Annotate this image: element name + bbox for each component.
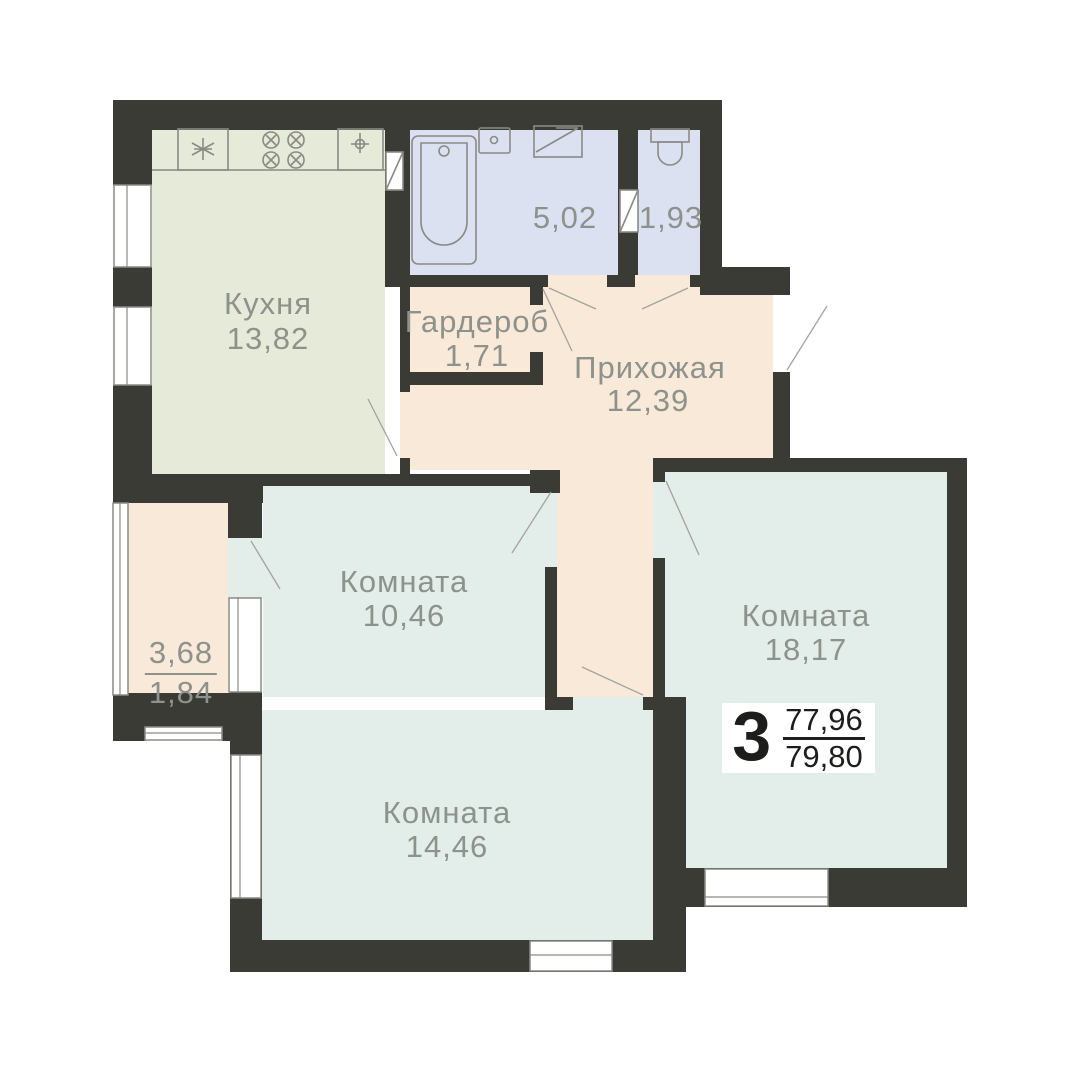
label-kitchen-area: 13,82 bbox=[227, 321, 310, 357]
wall bbox=[545, 567, 557, 697]
area-fraction: 77,96 79,80 bbox=[783, 703, 865, 774]
room-hallway-left bbox=[410, 385, 543, 470]
door-opening bbox=[548, 275, 607, 287]
wall bbox=[607, 275, 635, 287]
room-bedroom-large bbox=[665, 472, 947, 868]
wall bbox=[643, 697, 686, 710]
label-bedroom-mid-name: Комната bbox=[383, 795, 511, 831]
label-bedroom-large-area: 18,17 bbox=[765, 632, 848, 668]
rooms-count: 3 bbox=[732, 701, 771, 771]
wall bbox=[773, 372, 790, 470]
wall bbox=[228, 490, 262, 538]
wall bbox=[653, 697, 686, 972]
wall bbox=[690, 275, 710, 287]
label-balcony-area-total: 3,68 bbox=[145, 635, 217, 675]
label-bathroom-area: 5,02 bbox=[533, 200, 597, 236]
door-opening bbox=[545, 493, 557, 567]
door-opening bbox=[653, 482, 665, 558]
wall bbox=[947, 458, 967, 907]
living-area: 77,96 bbox=[783, 703, 865, 740]
wall bbox=[230, 692, 262, 972]
label-wardrobe-name: Гардероб bbox=[405, 304, 549, 340]
apartment-info-badge: 3 77,96 79,80 bbox=[722, 703, 875, 773]
label-wardrobe-area: 1,71 bbox=[445, 338, 509, 374]
wall bbox=[653, 470, 665, 482]
wall bbox=[545, 697, 573, 710]
wall bbox=[686, 868, 967, 907]
wall bbox=[700, 100, 722, 280]
wall bbox=[618, 130, 638, 275]
door-opening bbox=[400, 392, 410, 458]
wall bbox=[113, 727, 145, 741]
wall bbox=[385, 130, 410, 287]
door-opening bbox=[573, 697, 643, 710]
wall bbox=[530, 352, 543, 372]
wall bbox=[263, 474, 557, 486]
label-bedroom-small-area: 10,46 bbox=[363, 598, 446, 634]
label-hallway-area: 12,39 bbox=[607, 383, 690, 419]
label-toilet-area: 1,93 bbox=[639, 200, 703, 236]
wall bbox=[700, 267, 790, 295]
wall bbox=[113, 100, 152, 185]
label-bedroom-small-name: Комната bbox=[340, 564, 468, 600]
wall bbox=[230, 940, 686, 972]
label-bedroom-mid-area: 14,46 bbox=[406, 829, 489, 865]
door-opening bbox=[228, 538, 263, 598]
door-opening bbox=[635, 275, 690, 287]
wall bbox=[410, 275, 548, 287]
label-balcony-area-reduced: 1,84 bbox=[149, 675, 213, 711]
wall bbox=[530, 287, 543, 305]
wall bbox=[530, 470, 560, 493]
room-hallway-corridor bbox=[557, 458, 653, 710]
wall bbox=[653, 558, 665, 697]
wall bbox=[113, 100, 722, 130]
label-kitchen-name: Кухня bbox=[224, 286, 312, 322]
total-area: 79,80 bbox=[785, 740, 863, 773]
wall bbox=[222, 727, 230, 741]
wall bbox=[400, 458, 410, 474]
floor-plan: Кухня 13,82 5,02 1,93 Гардероб 1,71 Прих… bbox=[0, 0, 1081, 1080]
wall bbox=[113, 267, 152, 307]
wall bbox=[653, 458, 967, 472]
label-bedroom-large-name: Комната bbox=[742, 598, 870, 634]
label-hallway-name: Прихожая bbox=[574, 350, 726, 386]
